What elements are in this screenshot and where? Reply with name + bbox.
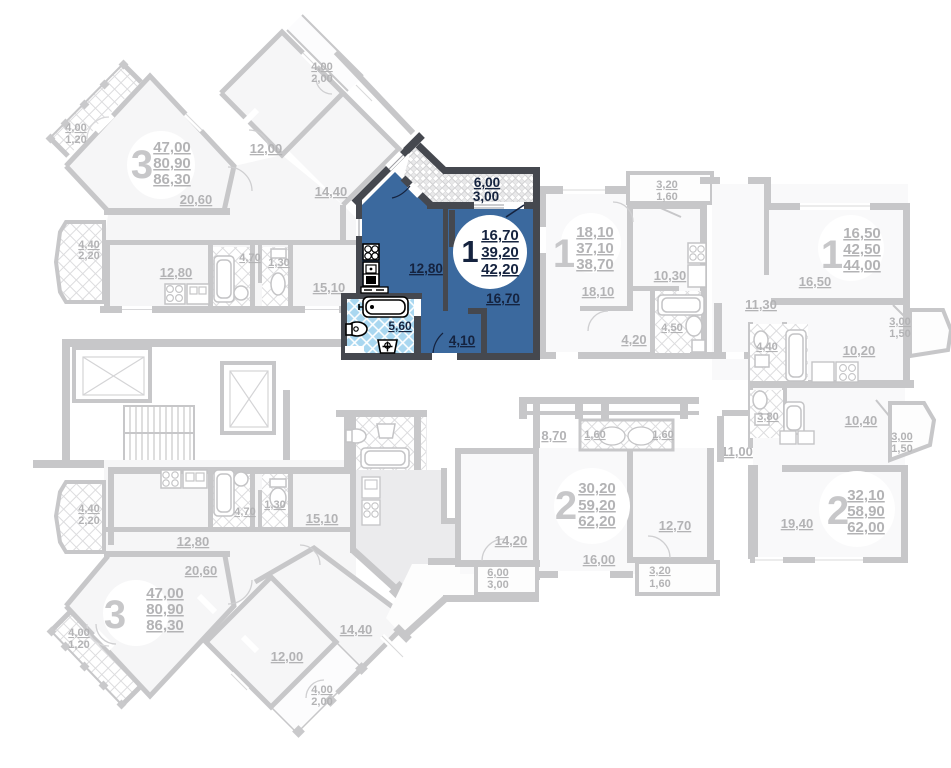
svg-text:3,20: 3,20 (649, 565, 670, 577)
svg-text:16,70: 16,70 (481, 227, 519, 244)
svg-text:12,70: 12,70 (659, 518, 692, 533)
svg-text:18,10: 18,10 (582, 284, 615, 299)
svg-text:18,10: 18,10 (576, 224, 614, 241)
svg-text:1,60: 1,60 (649, 578, 670, 590)
svg-text:12,00: 12,00 (250, 141, 283, 156)
svg-text:32,10: 32,10 (847, 487, 885, 504)
svg-text:3,00: 3,00 (891, 431, 912, 443)
svg-text:44,00: 44,00 (843, 257, 881, 274)
svg-text:1: 1 (821, 233, 843, 277)
svg-text:4,00: 4,00 (65, 122, 86, 134)
svg-text:3,80: 3,80 (757, 411, 778, 423)
svg-text:4,10: 4,10 (449, 333, 475, 348)
svg-text:59,20: 59,20 (578, 497, 616, 514)
svg-text:47,00: 47,00 (153, 139, 191, 156)
svg-text:37,10: 37,10 (576, 240, 614, 257)
svg-text:11,30: 11,30 (745, 297, 777, 312)
svg-text:2,00: 2,00 (311, 73, 332, 85)
svg-text:1,60: 1,60 (584, 429, 605, 441)
svg-text:4,70: 4,70 (234, 506, 255, 518)
svg-text:3,20: 3,20 (656, 179, 677, 191)
svg-text:4,20: 4,20 (621, 332, 646, 347)
svg-text:2,20: 2,20 (78, 515, 99, 527)
svg-text:14,20: 14,20 (495, 533, 528, 548)
svg-text:62,20: 62,20 (578, 513, 616, 530)
svg-text:3: 3 (104, 593, 126, 637)
svg-text:1,50: 1,50 (891, 443, 912, 455)
svg-text:14,40: 14,40 (340, 622, 373, 637)
svg-text:1,50: 1,50 (889, 328, 910, 340)
svg-text:15,10: 15,10 (306, 511, 339, 526)
svg-text:1,30: 1,30 (264, 499, 285, 511)
svg-text:20,60: 20,60 (180, 192, 213, 207)
svg-text:16,00: 16,00 (583, 552, 616, 567)
svg-text:16,50: 16,50 (799, 274, 832, 289)
svg-text:58,90: 58,90 (847, 503, 885, 520)
svg-text:5,60: 5,60 (388, 319, 412, 333)
svg-text:3: 3 (131, 143, 153, 187)
svg-text:6,00: 6,00 (474, 175, 500, 190)
svg-text:1,30: 1,30 (268, 257, 289, 269)
svg-text:16,70: 16,70 (486, 291, 520, 306)
svg-text:10,20: 10,20 (843, 343, 876, 358)
svg-text:30,20: 30,20 (578, 480, 616, 497)
svg-text:20,60: 20,60 (185, 563, 218, 578)
svg-text:4,40: 4,40 (78, 503, 99, 515)
svg-text:38,70: 38,70 (576, 256, 614, 273)
svg-text:4,00: 4,00 (311, 684, 332, 696)
svg-text:10,40: 10,40 (845, 413, 878, 428)
svg-text:2,00: 2,00 (311, 696, 332, 708)
svg-text:1: 1 (553, 232, 575, 276)
svg-text:12,80: 12,80 (160, 265, 193, 280)
svg-text:4,50: 4,50 (661, 322, 682, 334)
svg-text:47,00: 47,00 (146, 585, 184, 602)
svg-text:1,60: 1,60 (656, 191, 677, 203)
svg-text:1,20: 1,20 (68, 639, 89, 651)
svg-text:4,00: 4,00 (68, 627, 89, 639)
svg-text:1: 1 (461, 234, 478, 269)
svg-text:3,00: 3,00 (487, 579, 508, 591)
svg-text:12,80: 12,80 (177, 534, 210, 549)
svg-text:86,30: 86,30 (146, 617, 184, 634)
svg-text:2: 2 (555, 484, 577, 528)
svg-text:4,70: 4,70 (239, 252, 260, 264)
svg-text:42,50: 42,50 (843, 241, 881, 258)
svg-text:3,00: 3,00 (473, 189, 499, 204)
svg-text:80,90: 80,90 (153, 155, 191, 172)
svg-text:4,00: 4,00 (311, 61, 332, 73)
svg-text:8,70: 8,70 (541, 428, 566, 443)
svg-text:42,20: 42,20 (481, 261, 519, 278)
svg-text:19,40: 19,40 (781, 516, 814, 531)
svg-text:12,80: 12,80 (409, 261, 443, 276)
svg-text:2: 2 (827, 489, 849, 533)
svg-text:12,00: 12,00 (271, 649, 304, 664)
svg-text:80,90: 80,90 (146, 601, 184, 618)
svg-text:1,20: 1,20 (65, 134, 86, 146)
svg-text:3,00: 3,00 (889, 316, 910, 328)
svg-text:14,40: 14,40 (315, 184, 348, 199)
svg-text:4,40: 4,40 (756, 341, 777, 353)
svg-text:39,20: 39,20 (481, 244, 519, 261)
svg-text:10,30: 10,30 (654, 268, 687, 283)
svg-text:15,10: 15,10 (313, 280, 346, 295)
svg-text:1,60: 1,60 (652, 429, 673, 441)
svg-text:2,20: 2,20 (78, 250, 99, 262)
svg-text:6,00: 6,00 (487, 567, 508, 579)
svg-text:86,30: 86,30 (153, 171, 191, 188)
svg-text:16,50: 16,50 (843, 225, 881, 242)
svg-text:62,00: 62,00 (847, 519, 885, 536)
